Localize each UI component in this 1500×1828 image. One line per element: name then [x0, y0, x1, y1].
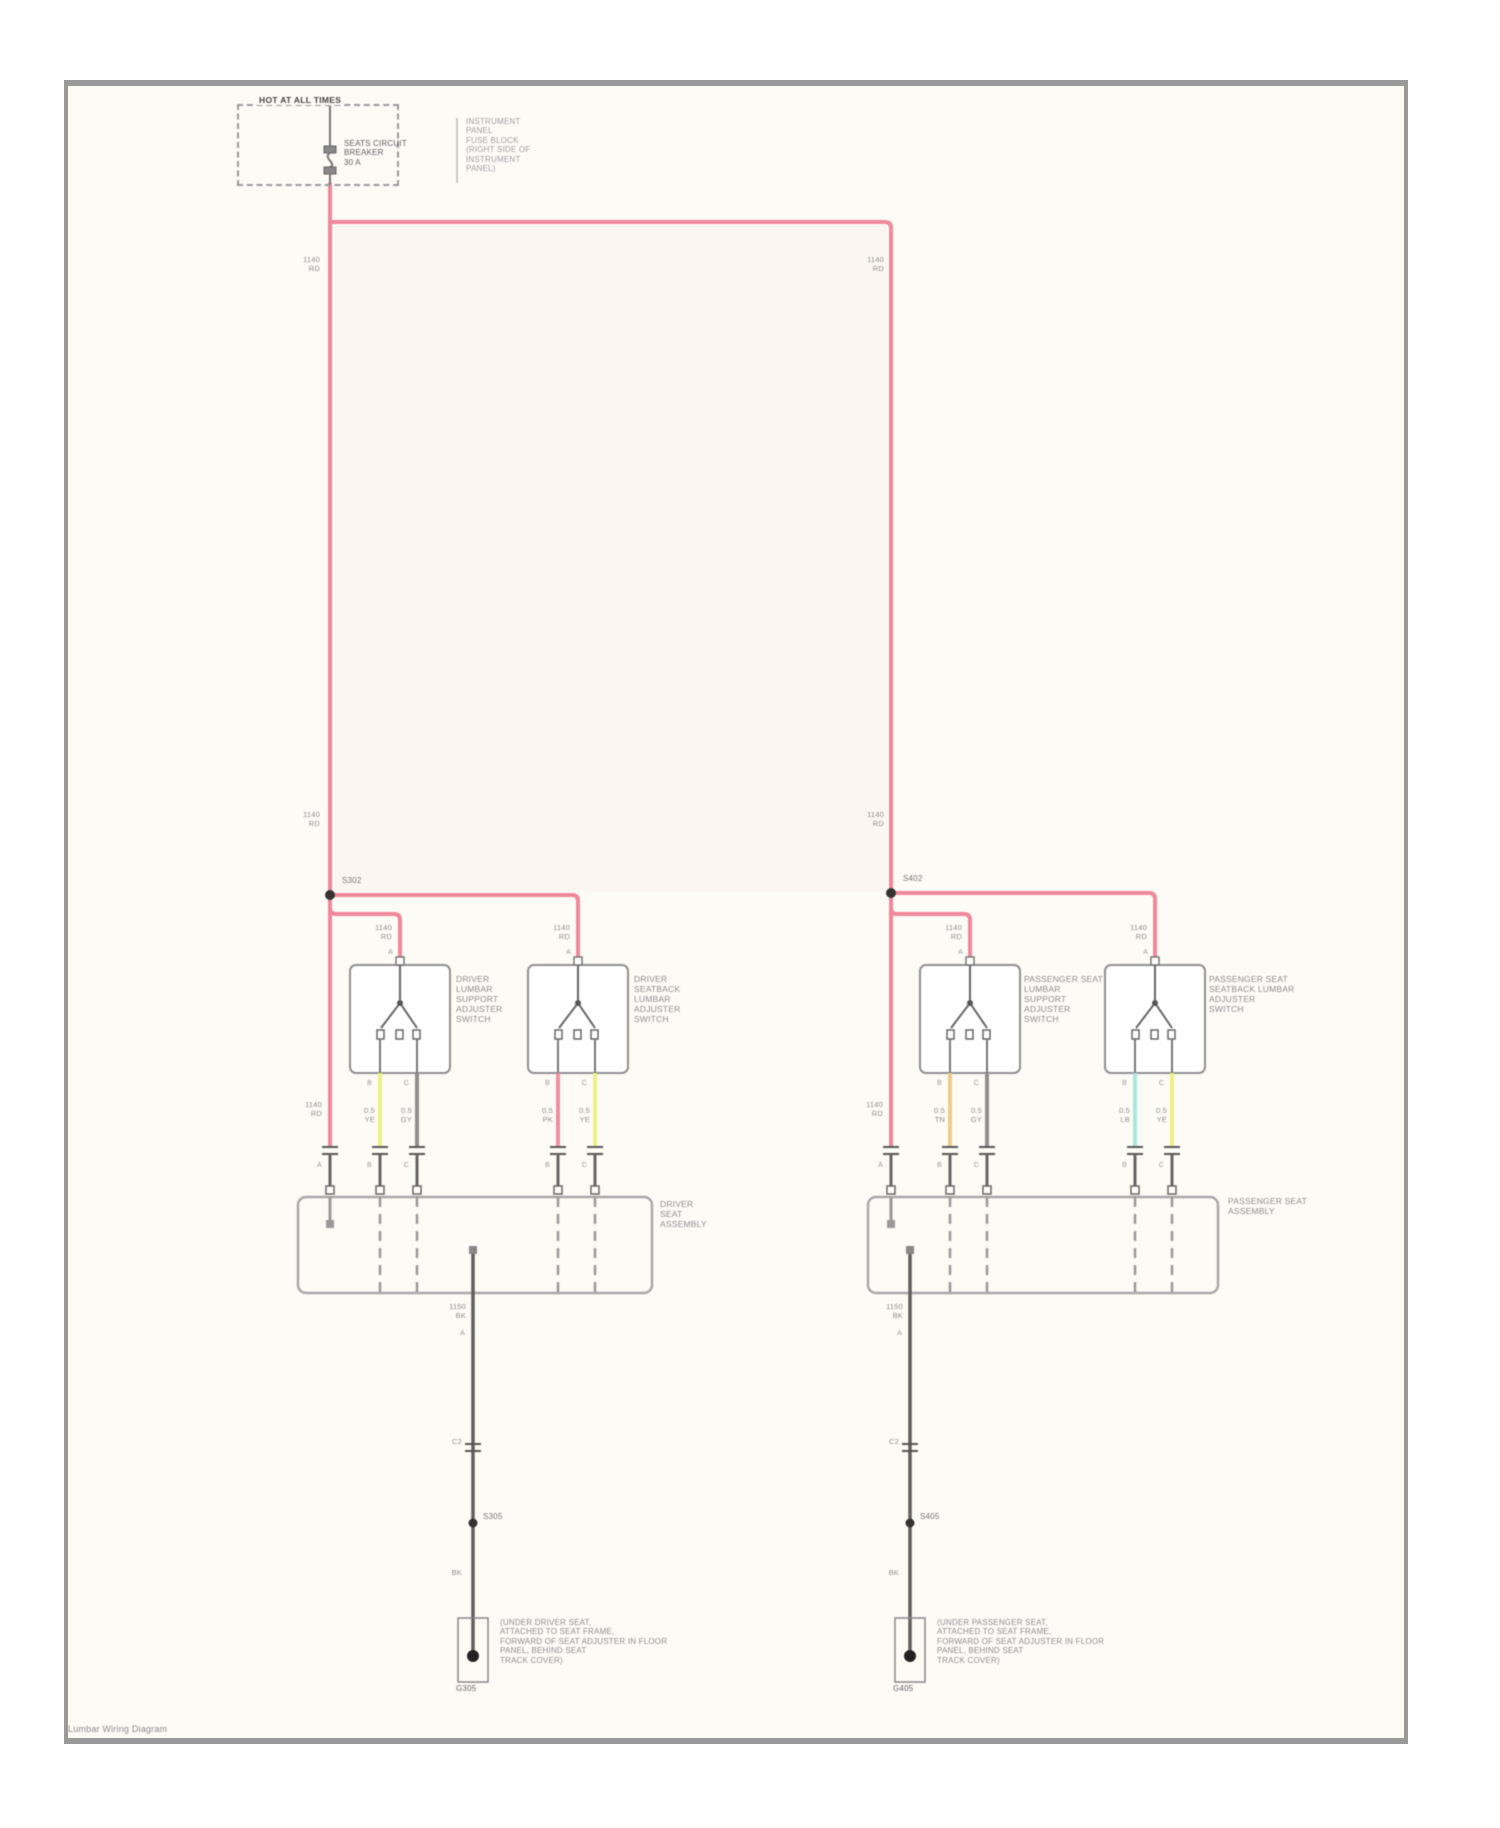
pin-letter-l2r-dn: C — [582, 1162, 587, 1170]
seat-box-power-stubs — [330, 1197, 891, 1222]
ground-splice-right — [906, 1519, 915, 1528]
wire-label-r1-feed: 1140 RD — [945, 923, 962, 941]
wire-label-r1-right: 0.5 GY — [971, 1106, 982, 1124]
l2-feed — [330, 895, 578, 965]
ground-pin-left: A — [460, 1330, 465, 1338]
pin-letter-r1-in: A — [958, 949, 963, 957]
ground-code-right: G405 — [893, 1684, 913, 1693]
ground-code-left: G305 — [456, 1684, 476, 1693]
tint-region — [333, 226, 888, 891]
pin-letter-r2l-up: B — [1122, 1080, 1127, 1088]
ground-splice-label-right: S405 — [920, 1512, 939, 1521]
switch-callout-l1: DRIVER LUMBAR SUPPORT ADJUSTER SWITCH — [456, 974, 502, 1024]
hot-banner: HOT AT ALL TIMES — [256, 95, 344, 105]
right-stub-terminal — [887, 1220, 895, 1228]
pin-letter-l2-in: A — [566, 949, 571, 957]
ground-splice-label-left: S305 — [483, 1512, 502, 1521]
pin-letter-right-trunk: A — [878, 1162, 883, 1170]
seat-callout-left: DRIVER SEAT ASSEMBLY — [660, 1199, 707, 1229]
page-caption: Lumbar Wiring Diagram — [68, 1724, 167, 1735]
switch-contact-pins — [377, 1030, 1175, 1039]
diagram-layer: HOT AT ALL TIMES SEATS CIRCUIT BREAKER 3… — [0, 0, 1500, 1828]
switch-callout-l2: DRIVER SEATBACK LUMBAR ADJUSTER SWITCH — [634, 974, 680, 1024]
diagram-canvas — [0, 0, 1500, 1828]
wire-label-l2-left: 0.5 PK — [542, 1106, 553, 1124]
switch-input-pins — [396, 957, 1159, 965]
splice-dot-right — [886, 888, 896, 898]
pin-letter-r1l-dn: B — [937, 1162, 942, 1170]
splice-label-left: S302 — [342, 876, 361, 885]
seat-box-internal-wires — [380, 1197, 1172, 1293]
ground-wire-label-left-top: 1150 BK — [449, 1302, 466, 1320]
fuse-block-callout: INSTRUMENT PANEL FUSE BLOCK (RIGHT SIDE … — [466, 117, 530, 174]
pin-letter-l2r-up: C — [582, 1080, 587, 1088]
pin-letter-r1r-dn: C — [974, 1162, 979, 1170]
wire-label-power-right-upper: 1140 RD — [867, 255, 884, 273]
splice-label-right: S402 — [903, 874, 922, 883]
wire-label-right-trunk-lower: 1140 RD — [866, 1100, 883, 1118]
pin-letter-r2r-dn: C — [1159, 1162, 1164, 1170]
pin-letter-l1r-up: C — [404, 1080, 409, 1088]
ground-wires — [473, 1252, 910, 1658]
left-stub-terminal — [326, 1220, 334, 1228]
pin-letter-r1l-up: B — [937, 1080, 942, 1088]
switch-callout-r1: PASSENGER SEAT LUMBAR SUPPORT ADJUSTER S… — [1024, 974, 1103, 1024]
ground-point-right — [904, 1650, 916, 1662]
inline-connectors — [322, 1147, 1180, 1194]
wire-label-l2-feed: 1140 RD — [553, 923, 570, 941]
wire-label-r2-left: 0.5 LB — [1119, 1106, 1130, 1124]
left-ground-origin — [469, 1246, 477, 1254]
switch-callout-r2: PASSENGER SEAT SEATBACK LUMBAR ADJUSTER … — [1209, 974, 1295, 1014]
seat-callout-right: PASSENGER SEAT ASSEMBLY — [1228, 1196, 1307, 1216]
ground-callout-left: (UNDER DRIVER SEAT, ATTACHED TO SEAT FRA… — [500, 1618, 667, 1665]
wire-label-l1-feed: 1140 RD — [375, 923, 392, 941]
splice-dot-left — [325, 890, 335, 900]
pin-letter-r2l-dn: B — [1122, 1162, 1127, 1170]
pin-letter-l1-in: A — [388, 949, 393, 957]
wire-label-r2-feed: 1140 RD — [1130, 923, 1147, 941]
ground-color-label-left: BK — [452, 1568, 462, 1577]
ground-color-label-right: BK — [889, 1568, 899, 1577]
ground-inline-connectors — [465, 1444, 918, 1451]
ground-splice-left — [469, 1519, 478, 1528]
seat-box-right — [868, 1197, 1218, 1293]
ground-connector-left: C2 — [452, 1437, 462, 1446]
pin-letter-r1r-up: C — [974, 1080, 979, 1088]
ground-callout-right: (UNDER PASSENGER SEAT, ATTACHED TO SEAT … — [937, 1618, 1104, 1665]
wire-label-l2-right: 0.5 YE — [579, 1106, 590, 1124]
wire-label-r1-left: 0.5 TN — [934, 1106, 945, 1124]
wire-label-l1-left: 0.5 YE — [364, 1106, 375, 1124]
right-ground-origin — [906, 1246, 914, 1254]
ground-pin-right: A — [897, 1330, 902, 1338]
pin-letter-l1r-dn: C — [404, 1162, 409, 1170]
wiring-diagram-page: HOT AT ALL TIMES SEATS CIRCUIT BREAKER 3… — [0, 0, 1500, 1828]
circuit-breaker-label: SEATS CIRCUIT BREAKER 30 A — [344, 139, 407, 167]
wire-label-power-right-lower: 1140 RD — [867, 810, 884, 828]
pin-letter-l2l-dn: B — [545, 1162, 550, 1170]
pin-letter-r2r-up: C — [1159, 1080, 1164, 1088]
ground-point-left — [467, 1650, 479, 1662]
colored-output-wires — [380, 1073, 1172, 1146]
switch-output-stubs — [380, 1039, 1172, 1073]
wire-label-r2-right: 0.5 YE — [1156, 1106, 1167, 1124]
pin-letter-l1l-up: B — [367, 1080, 372, 1088]
seat-box-left — [298, 1197, 652, 1293]
ground-wire-label-right-top: 1150 BK — [886, 1302, 903, 1320]
pin-letter-r2-in: A — [1143, 949, 1148, 957]
wire-label-power-left-lower: 1140 RD — [303, 810, 320, 828]
pin-letter-left-trunk: A — [317, 1162, 322, 1170]
wire-label-power-left-upper: 1140 RD — [303, 255, 320, 273]
pin-letter-l1l-dn: B — [367, 1162, 372, 1170]
ground-connector-right: C2 — [889, 1437, 899, 1446]
wire-label-left-trunk-lower: 1140 RD — [305, 1100, 322, 1118]
r2-feed — [891, 893, 1155, 965]
wire-label-l1-right: 0.5 GY — [401, 1106, 412, 1124]
pin-letter-l2l-up: B — [545, 1080, 550, 1088]
